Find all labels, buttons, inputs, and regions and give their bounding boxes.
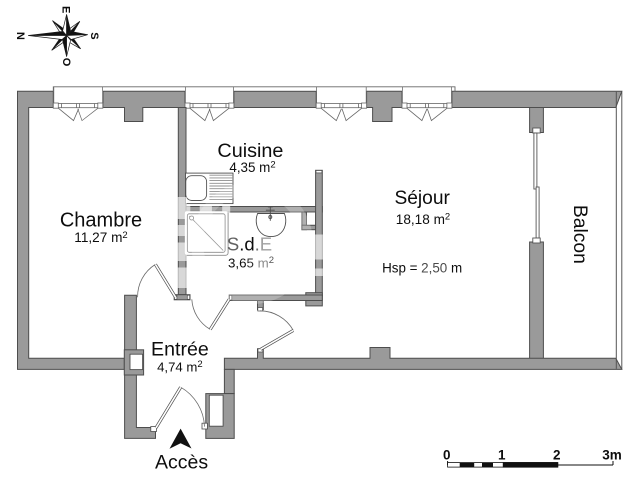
svg-text:Cuisine: Cuisine bbox=[217, 140, 283, 162]
svg-text:2: 2 bbox=[553, 448, 561, 463]
svg-text:S: S bbox=[88, 32, 100, 39]
svg-text:S.d.E: S.d.E bbox=[227, 233, 272, 254]
svg-text:3m: 3m bbox=[602, 448, 622, 463]
svg-text:O: O bbox=[60, 58, 72, 67]
svg-text:18,18 m2: 18,18 m2 bbox=[396, 212, 450, 227]
svg-text:4,35 m2: 4,35 m2 bbox=[229, 160, 275, 175]
svg-text:0: 0 bbox=[443, 448, 451, 463]
svg-text:3,65 m2: 3,65 m2 bbox=[228, 255, 274, 270]
svg-text:Chambre: Chambre bbox=[60, 210, 142, 232]
svg-text:Accès: Accès bbox=[155, 451, 208, 473]
svg-text:Balcon: Balcon bbox=[569, 205, 590, 264]
svg-text:1: 1 bbox=[498, 448, 506, 463]
svg-text:Entrée: Entrée bbox=[151, 339, 209, 361]
svg-text:Hsp = 2,50 m: Hsp = 2,50 m bbox=[382, 260, 462, 275]
svg-text:E: E bbox=[60, 6, 72, 13]
svg-text:Séjour: Séjour bbox=[394, 188, 450, 209]
svg-text:4,74 m2: 4,74 m2 bbox=[157, 359, 203, 374]
svg-text:N: N bbox=[16, 32, 28, 40]
svg-text:11,27 m2: 11,27 m2 bbox=[74, 230, 127, 245]
